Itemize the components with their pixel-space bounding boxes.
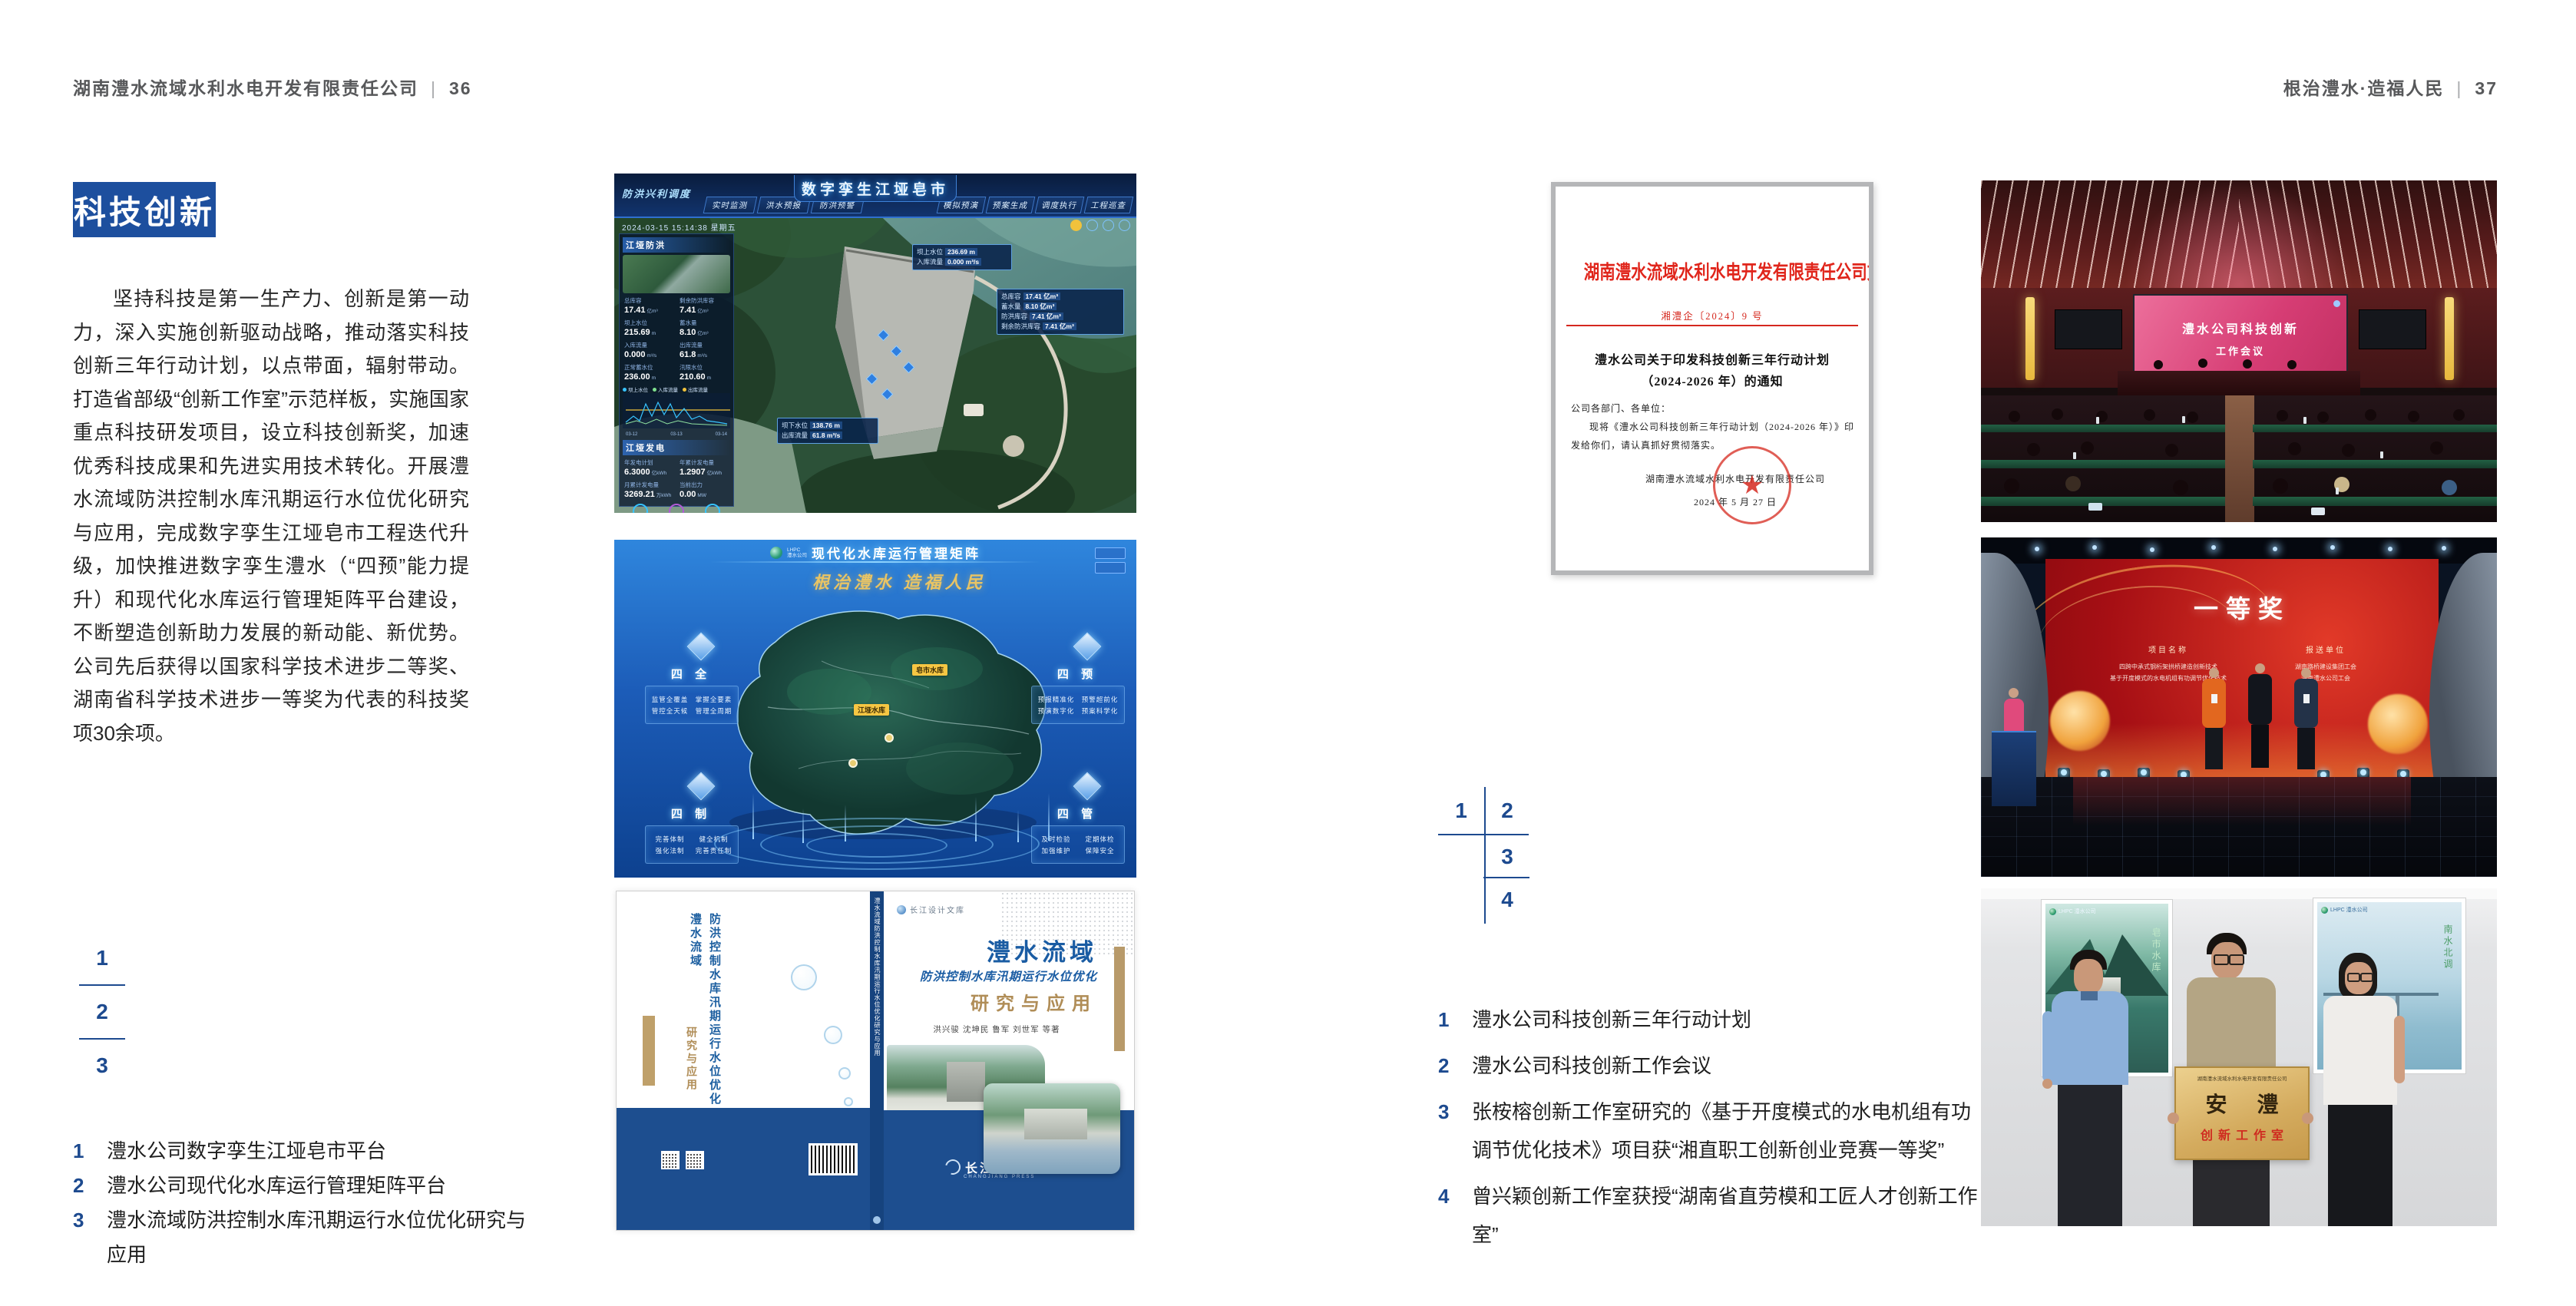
legend-dot [653, 388, 656, 392]
figure-grid-2: 2 [1496, 795, 1519, 826]
yellow-lamp-left [2025, 297, 2035, 380]
legend-label: 入库流量 [658, 388, 678, 393]
caption-item: 3张桉榕创新工作室研究的《基于开度模式的水电机组有功调节优化技术》项目获“湘直职… [1438, 1093, 1980, 1169]
back-title-sub: 防洪控制水库汛期运行水位优化 [706, 913, 723, 1106]
dashboard-timestamp: 2024-03-15 15:14:38 星期五 [622, 221, 736, 233]
audience-silhouette [2453, 409, 2465, 421]
water-level-chart [623, 393, 730, 428]
section-title-box: 科技创新 [73, 182, 216, 237]
stat-value: 1.2907 [680, 468, 706, 477]
document-red-header: 湖南澧水流域水利水电开发有限责任公司文件 [1584, 257, 1841, 285]
presenter-silhouette [2243, 359, 2252, 369]
stage-floor [1981, 777, 2497, 877]
stat: 月累计发电量3269.21万kWh [623, 480, 675, 501]
callout-value: 8.10 亿m³ [1023, 303, 1057, 310]
water-bottle [2073, 452, 2076, 459]
spotlight [2330, 545, 2335, 550]
ceiling-pink-glow [2124, 180, 2354, 296]
panel-item: 掌握全要素 [693, 695, 735, 704]
dashboard-toolbar-icons [1066, 220, 1130, 235]
gauge-unit3 [705, 504, 720, 513]
panel-item: 保障安全 [1079, 846, 1121, 855]
back-cover-blue-band [617, 1108, 870, 1230]
stat: 坝上水位215.69m [623, 318, 675, 339]
table-row-cloth [1981, 460, 2225, 468]
stat-label: 出库流量 [680, 341, 729, 349]
brand-bottom: 澧水公司 [787, 553, 807, 558]
panel-item: 管理全周期 [693, 706, 735, 716]
dam-photo-thumbnail [623, 255, 730, 293]
stat: 入库流量0.000m³/s [623, 340, 675, 361]
table-row-cloth [1981, 425, 2225, 432]
brand-top: LHPC [787, 547, 800, 553]
book-title-sub: 防洪控制水库汛期运行水位优化 [890, 967, 1097, 984]
stat: 汛限水位210.60m [678, 362, 730, 383]
stat-value: 6.3000 [624, 468, 650, 477]
panel-siguan: 及时检验 定期体检 加强维护 保障安全 [1031, 825, 1125, 864]
podium [1992, 731, 2036, 806]
stat-value: 0.000 [624, 350, 646, 359]
page-number-right: 37 [2475, 78, 2498, 98]
legend-item: 入库流量 [653, 385, 678, 393]
stat-unit: 万kWh [656, 493, 672, 498]
figure-grid-hline2 [1483, 877, 1529, 878]
document-title-line2: （2024-2026 年）的通知 [1556, 371, 1869, 389]
figure-index-left: 1 2 3 [79, 943, 125, 1081]
panel-icon-siguan [1073, 772, 1102, 801]
matrix-slogan: 根治澧水 造福人民 [812, 569, 987, 593]
stat-value: 3269.21 [624, 490, 655, 499]
stat-unit: MW [697, 493, 706, 498]
spotlight [2150, 547, 2154, 552]
caption-number: 2 [73, 1169, 107, 1203]
photo-studio-plaque: LHPC 澧水公司 皂市水库 LHPC 澧水公司 南水北调 [1981, 888, 2497, 1226]
tshirt [2323, 996, 2397, 1105]
dam-photo-2 [984, 1083, 1120, 1174]
poster-brand-row: LHPC 澧水公司 [2049, 908, 2096, 915]
lhpc-logo-icon [2049, 908, 2056, 915]
audience-silhouette [2342, 444, 2355, 457]
audience-silhouette [2027, 443, 2040, 456]
chart-legend: 坝上水位 入库流量 出库流量 [623, 385, 730, 393]
light-pillar [1048, 793, 1050, 841]
unit-line: 湖南路桥建设集团工会 [2260, 661, 2391, 673]
callout-upstream: 坝上水位236.69 m 入库流量0.000 m³/s [912, 244, 1012, 270]
matrix-title: 现代化水库运行管理矩阵 [812, 543, 980, 562]
stat-value: 210.60 [680, 372, 706, 382]
audience-silhouette [2288, 442, 2301, 455]
audience-silhouette [2081, 441, 2094, 455]
alert-icon [1070, 220, 1082, 231]
document-red-rule [1566, 325, 1858, 326]
callout-label: 出库流量 [782, 431, 808, 439]
caption-text: 曾兴颖创新工作室获授“湖南省直劳模和工匠人才创新工作室” [1472, 1177, 1980, 1254]
callout-row: 总库容17.41 亿m³ [1001, 292, 1119, 302]
panel-title-siyu: 四 预 [1031, 666, 1123, 682]
divider-line [79, 1038, 125, 1040]
seal-star-icon: ★ [1741, 470, 1764, 501]
callout-label: 入库流量 [917, 258, 943, 266]
tissue-box [2088, 503, 2102, 511]
spotlight [2442, 546, 2446, 551]
spotlight [2211, 545, 2216, 550]
trousers [2328, 1105, 2392, 1226]
x-tick: 03-14 [716, 432, 727, 437]
stat-label: 年发电计划 [624, 458, 673, 467]
caption-item: 2澧水公司现代化水库运行管理矩阵平台 [73, 1169, 534, 1203]
header-divider: | [431, 78, 437, 98]
stat-unit: 亿kWh [707, 471, 723, 476]
panel-item: 预演数字化 [1035, 706, 1077, 716]
qr-code [686, 1151, 704, 1169]
matrix-header: LHPC澧水公司 现代化水库运行管理矩阵 [614, 543, 1136, 562]
audience-silhouette [2009, 411, 2020, 422]
caption-text: 澧水公司科技创新三年行动计划 [1472, 1000, 1751, 1039]
legend-dot [623, 388, 627, 392]
audience-silhouette [2165, 444, 2178, 457]
audience-silhouette [2173, 480, 2188, 495]
spotlight [2273, 547, 2277, 551]
hand [2042, 1079, 2052, 1089]
caption-number: 1 [73, 1134, 107, 1169]
lhpc-logo-icon [2321, 907, 2328, 914]
panel-flood-title: 江垭防洪 [623, 237, 730, 253]
awardee-body [2294, 679, 2318, 728]
unit-gauges [623, 504, 730, 513]
series-logo-icon [897, 905, 906, 914]
plaque-main: 安 澧 [2176, 1088, 2308, 1119]
caption-number: 4 [1438, 1177, 1472, 1254]
bubble-decoration [824, 1026, 842, 1044]
gauge-unit2 [669, 504, 684, 513]
screen-title-line1: 澧水公司科技创新 [2182, 319, 2299, 337]
stat: 当前出力0.00MW [678, 480, 730, 501]
x-tick: 03-12 [626, 432, 637, 437]
tab-realtime-monitor: 实时监测 [703, 197, 758, 213]
audience-silhouette [2442, 480, 2457, 495]
stat-unit: m [707, 375, 711, 381]
stage-light-glow [2360, 769, 2366, 775]
presenter-head [2255, 663, 2265, 673]
figure-index-2: 2 [79, 997, 125, 1027]
audience-silhouette [2317, 412, 2329, 423]
panel-item: 预报精准化 [1035, 695, 1077, 704]
face [2074, 959, 2103, 994]
series-name: 长江设计文库 [910, 904, 965, 915]
x-tick: 03-13 [670, 432, 682, 437]
caption-item: 1澧水公司数字孪生江垭皂市平台 [73, 1134, 534, 1169]
page-motto: 根治澧水·造福人民 [2283, 78, 2445, 98]
stat: 总库容17.41亿m³ [623, 296, 675, 316]
awardee-legs [2205, 728, 2223, 769]
caption-item: 4曾兴颖创新工作室获授“湖南省直劳模和工匠人才创新工作室” [1438, 1177, 1980, 1254]
awardee-legs [2297, 728, 2315, 769]
light-pillar [845, 805, 846, 841]
polo-shirt [2052, 991, 2128, 1085]
front-tan-bar [1114, 947, 1125, 1051]
legend-dot [683, 388, 686, 392]
stat-label: 当前出力 [680, 481, 729, 489]
callout-row: 坝下水位138.76 m [782, 421, 874, 431]
trousers [2058, 1085, 2122, 1226]
document-salutation: 公司各部门、各单位： [1571, 402, 1857, 415]
figure-grid-3: 3 [1496, 841, 1519, 872]
platform-ring-inner [806, 833, 947, 858]
poster-brand: LHPC 澧水公司 [2058, 908, 2096, 915]
stat-unit: 亿kWh [652, 471, 667, 476]
panel-item: 完善体制 [649, 835, 691, 844]
photo-innovation-meeting: 澧水公司科技创新 工作会议 [1981, 180, 2497, 522]
tissue-box [2311, 508, 2325, 515]
audience-silhouette [2430, 441, 2443, 455]
bubble-decoration [838, 1067, 851, 1080]
map-tag-jiangya: 江垭水库 [854, 704, 889, 716]
back-title-main: 澧水流域 [687, 913, 703, 968]
callout-row: 蓄水量8.10 亿m³ [1001, 302, 1119, 312]
audience-silhouette [2187, 412, 2198, 423]
document-body-line1: 现将《澧水公司科技创新三年行动计划（2024-2026 年）》印 [1571, 420, 1857, 433]
qr-code [661, 1151, 680, 1169]
award-screen: 一等奖 项目名称 四跨中承式钢桁架拱桥建造创新技术 基于开度模式的水电机组有功调… [2045, 559, 2439, 777]
screen-title-line2: 工作会议 [2216, 343, 2265, 358]
barcode-stripes [811, 1146, 855, 1173]
captions-right: 1澧水公司科技创新三年行动计划 2澧水公司科技创新工作会议 3张桉榕创新工作室研… [1438, 1000, 1980, 1254]
menu-button [1095, 562, 1126, 574]
stat: 正常蓄水位236.00m [623, 362, 675, 383]
document-title-line1: 澧水公司关于印发科技创新三年行动计划 [1556, 349, 1869, 368]
audience-silhouette [2273, 478, 2288, 494]
figure-grid-4: 4 [1496, 884, 1519, 915]
spine-title: 澧水流域防洪控制水库汛期运行水位优化研究与应用 [873, 898, 881, 1056]
light-pillar [802, 808, 804, 843]
caption-text: 澧水流域防洪控制水库汛期运行水位优化研究与应用 [107, 1203, 534, 1272]
panel-item: 强化法制 [649, 846, 691, 855]
barcode [809, 1143, 858, 1175]
watershed-map [706, 600, 1060, 839]
poster-caption: 皂市水库 [2150, 927, 2163, 974]
panel-power-title: 江垭发电 [623, 440, 730, 455]
tab-plan-generation: 预案生成 [986, 197, 1036, 213]
dam-face [1024, 1109, 1087, 1139]
stat-unit: 亿m³ [647, 309, 658, 314]
stat-unit: 亿m³ [697, 331, 708, 336]
table-row-cloth [2253, 425, 2497, 432]
panel-item: 监管全覆盖 [649, 695, 691, 704]
station-marker [885, 733, 894, 742]
stat-label: 月累计发电量 [624, 481, 673, 489]
award-title: 一等奖 [2045, 590, 2439, 625]
light-pillar [752, 793, 754, 839]
callout-row: 出库流量61.8 m³/s [782, 431, 874, 441]
panel-title-sizhi: 四 制 [645, 805, 737, 822]
legend-label: 出库流量 [688, 388, 708, 393]
audience-silhouette [2004, 478, 2019, 494]
caption-number: 1 [1438, 1000, 1472, 1039]
chart-x-axis: 03-12 03-13 03-14 [623, 432, 730, 437]
light-pillar [1017, 810, 1019, 842]
stage-light-glow [2400, 771, 2406, 777]
book-authors: 洪兴骏 沈坤民 鲁军 刘世军 等著 [901, 1023, 1093, 1035]
publisher-english: CHANGJIANG PRESS [964, 1175, 1035, 1179]
caption-text: 张桉榕创新工作室研究的《基于开度模式的水电机组有功调节优化技术》项目获“湘直职工… [1472, 1093, 1980, 1169]
stat-label: 入库流量 [624, 341, 673, 349]
book-title-main: 澧水流域 [901, 933, 1097, 967]
glasses [2347, 973, 2360, 982]
stat: 出库流量61.8m³/s [678, 340, 730, 361]
head-table [2118, 371, 2360, 395]
callout-label: 坝上水位 [917, 248, 943, 256]
right-page-header: 根治澧水·造福人民|37 [1768, 74, 2498, 100]
lhpc-logo-icon [770, 547, 782, 559]
center-aisle [2225, 395, 2254, 522]
publisher-logo-icon [942, 1156, 963, 1177]
panel-item: 定期体检 [1079, 835, 1121, 844]
wall-tv-right [2359, 309, 2426, 349]
water-bottle [2096, 417, 2099, 424]
dashboard-title: 数字孪生江垭皂市 [794, 175, 957, 202]
stat-value: 215.69 [624, 328, 650, 337]
trophy [2303, 694, 2310, 703]
spotlight [2388, 547, 2392, 551]
water-bottle [2182, 416, 2185, 423]
audience-silhouette [2408, 411, 2419, 422]
stage-light-glow [2101, 771, 2107, 777]
stat-label: 坝上水位 [624, 319, 673, 327]
stat-label: 剩余防洪库容 [680, 296, 729, 305]
audience-silhouette [2144, 409, 2155, 421]
presenter-body [2248, 674, 2272, 725]
callout-label: 坝下水位 [782, 422, 808, 429]
stat-unit: m [652, 375, 656, 381]
back-tan-block [643, 1016, 655, 1086]
caption-item: 2澧水公司科技创新工作会议 [1438, 1046, 1980, 1085]
stat: 年发电计划6.3000亿kWh [623, 458, 675, 478]
stat-value: 61.8 [680, 350, 696, 359]
fullscreen-button [1095, 547, 1126, 559]
section-title: 科技创新 [74, 187, 215, 233]
table-row-cloth [2253, 497, 2497, 506]
audience-silhouette [2277, 410, 2288, 422]
spotlight [2092, 545, 2097, 550]
wall-tv-left [2055, 309, 2122, 349]
tab-dispatch: 调度执行 [1035, 197, 1085, 213]
flood-stats: 总库容17.41亿m³ 剩余防洪库容7.41亿m³ 坝上水位215.69m 蓄水… [623, 296, 730, 383]
divider-line [79, 984, 125, 986]
station-marker [848, 759, 858, 768]
caption-item: 1澧水公司科技创新三年行动计划 [1438, 1000, 1980, 1039]
stat: 年累计发电量1.2907亿kWh [678, 458, 730, 478]
body-paragraph: 坚持科技是第一生产力、创新是第一动力，深入实施创新驱动战略，推动落实科技创新三年… [73, 283, 469, 750]
callout-value: 61.8 m³/s [810, 431, 842, 439]
dashboard-corner-label: 防洪兴利调度 [622, 186, 691, 200]
series-badge: 长江设计文库 [897, 904, 965, 915]
stat-label: 蓄水量 [680, 319, 729, 327]
meeting-screen: 澧水公司科技创新 工作会议 [2133, 294, 2348, 382]
legend-item: 坝上水位 [623, 385, 648, 393]
panel-item: 管控全天候 [649, 706, 691, 716]
callout-value: 138.76 m [810, 422, 842, 429]
screen-logo-icon [2333, 300, 2340, 307]
stat-label: 正常蓄水位 [624, 363, 673, 372]
glasses [2360, 973, 2373, 982]
dashboard-sidebar: 江垭防洪 总库容17.41亿m³ 剩余防洪库容7.41亿m³ 坝上水位215.6… [619, 233, 734, 507]
figure-official-document: 湖南澧水流域水利水电开发有限责任公司文件 湘澧企〔2024〕9 号 澧水公司关于… [1551, 182, 1873, 575]
hand [2168, 1113, 2179, 1124]
stat-unit: m³/s [647, 353, 657, 359]
header-glow-line [710, 561, 1040, 563]
arm [2394, 1016, 2405, 1083]
legend-label: 坝上水位 [628, 388, 648, 393]
arm [2042, 1011, 2054, 1082]
panel-siquan: 监管全覆盖 掌握全要素 管控全天候 管理全周期 [645, 686, 739, 724]
caption-number: 3 [73, 1203, 107, 1272]
awardee-body [2202, 679, 2226, 728]
yellow-lamp-right [2445, 297, 2454, 380]
audience-silhouette [2065, 476, 2081, 491]
header-divider: | [2456, 78, 2462, 98]
left-page-header: 湖南澧水流域水利水电开发有限责任公司|36 [73, 74, 472, 100]
screen-reflection [2073, 777, 2411, 826]
callout-row: 入库流量0.000 m³/s [917, 257, 1007, 267]
trophy [2211, 694, 2217, 703]
bubble-decoration [791, 964, 817, 990]
presenter-legs [2251, 725, 2269, 768]
audience-silhouette [2365, 409, 2376, 421]
power-stats: 年发电计划6.3000亿kWh 年累计发电量1.2907亿kWh 月累计发电量3… [623, 458, 730, 501]
stat: 剩余防洪库容7.41亿m³ [678, 296, 730, 316]
callout-value: 7.41 亿m³ [1030, 312, 1063, 320]
document-number: 湘澧企〔2024〕9 号 [1556, 308, 1869, 322]
figure-book-cover: 澧水流域 防洪控制水库汛期运行水位优化 研究与应用 澧水流域防洪控制水库汛期运行… [616, 891, 1135, 1231]
plaque-header: 湖南澧水流域水利水电开发有限责任公司 [2176, 1074, 2308, 1082]
book-spread: 湖南澧水流域水利水电开发有限责任公司|36 科技创新 坚持科技是第一生产力、创新… [0, 0, 2576, 1306]
user-icon [1119, 220, 1130, 231]
photo-award-ceremony: 一等奖 项目名称 四跨中承式钢桁架拱桥建造创新技术 基于开度模式的水电机组有功调… [1981, 537, 2497, 877]
panel-item: 及时检验 [1035, 835, 1077, 844]
golden-orb [2050, 691, 2110, 751]
book-title-tail: 研究与应用 [901, 988, 1097, 1015]
table-row-cloth [1981, 497, 2225, 506]
page-number-left: 36 [449, 78, 472, 98]
figure-index-3: 3 [79, 1050, 125, 1081]
gauge-unit1 [633, 504, 648, 513]
layers-icon [1086, 220, 1098, 231]
table-row-cloth [2253, 460, 2497, 468]
stat-value: 8.10 [680, 328, 696, 337]
caption-text: 澧水公司科技创新工作会议 [1472, 1046, 1711, 1085]
callout-value: 7.41 亿m³ [1043, 322, 1076, 330]
plaque-sub: 创新工作室 [2176, 1125, 2308, 1143]
host-head [2009, 688, 2019, 698]
golden-orb [2368, 694, 2428, 754]
collar [2081, 991, 2098, 1000]
callout-downstream: 坝下水位138.76 m 出库流量61.8 m³/s [777, 418, 878, 444]
caption-number: 3 [1438, 1093, 1472, 1169]
panel-icon-siyu [1073, 633, 1102, 661]
water-bottle [2303, 417, 2306, 424]
panel-siyu: 预报精准化 预警超前化 预演数字化 预案科学化 [1031, 686, 1125, 724]
panel-item: 预案科学化 [1079, 706, 1121, 716]
panel-item: 加强维护 [1035, 846, 1077, 855]
stat-value: 7.41 [680, 306, 696, 315]
presenter-silhouette [2198, 359, 2207, 368]
stat-unit: m³/s [697, 353, 707, 359]
callout-row: 坝上水位236.69 m [917, 247, 1007, 257]
figure-management-matrix: LHPC澧水公司 现代化水库运行管理矩阵 根治澧水 造福人民 皂市水库 江垭水库 [614, 540, 1136, 878]
hand [2302, 1113, 2313, 1124]
glasses [2229, 954, 2244, 965]
water-bottle [2336, 488, 2339, 494]
